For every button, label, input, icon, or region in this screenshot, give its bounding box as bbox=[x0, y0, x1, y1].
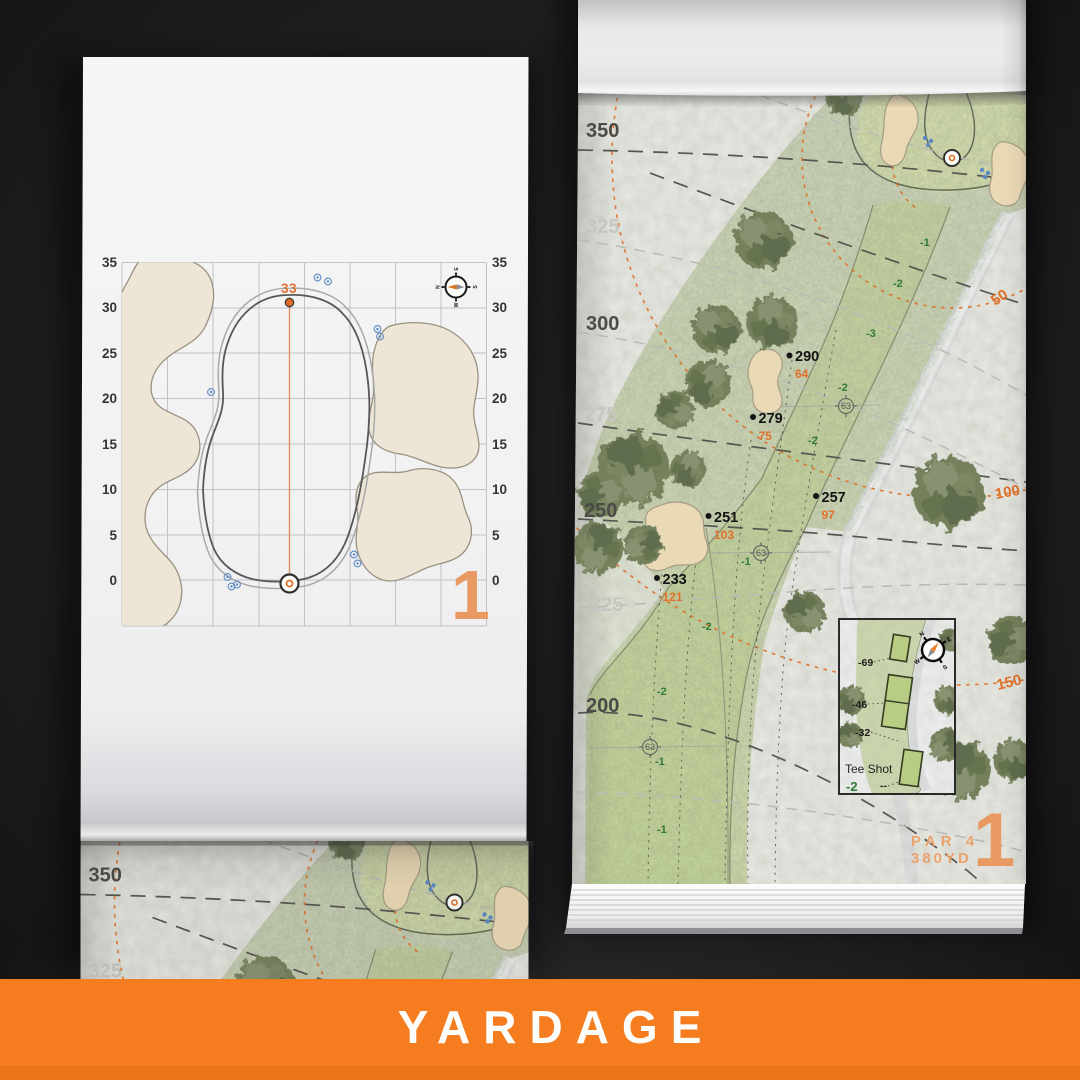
svg-text:290: 290 bbox=[795, 349, 819, 365]
svg-text:25: 25 bbox=[102, 346, 118, 361]
svg-text:W: W bbox=[454, 302, 460, 307]
svg-text:30: 30 bbox=[102, 300, 117, 315]
svg-text:-1: -1 bbox=[741, 556, 751, 568]
svg-text:20: 20 bbox=[102, 391, 117, 406]
svg-text:225: 225 bbox=[590, 594, 623, 616]
svg-text:-46: -46 bbox=[852, 699, 867, 711]
svg-text:350: 350 bbox=[586, 120, 619, 142]
svg-text:-2: -2 bbox=[702, 621, 712, 633]
svg-text:233: 233 bbox=[663, 572, 687, 588]
svg-text:-2: -2 bbox=[846, 779, 858, 794]
svg-text:Tee Shot: Tee Shot bbox=[845, 762, 893, 776]
svg-text:-2: -2 bbox=[808, 435, 818, 447]
svg-text:325: 325 bbox=[586, 216, 619, 238]
svg-text:-32: -32 bbox=[855, 727, 870, 739]
svg-text:251: 251 bbox=[714, 510, 738, 526]
svg-text:N: N bbox=[436, 285, 442, 289]
svg-text:103: 103 bbox=[714, 528, 734, 542]
svg-text:257: 257 bbox=[822, 490, 846, 506]
svg-text:20: 20 bbox=[492, 391, 507, 406]
svg-text:-69: -69 bbox=[858, 657, 873, 669]
svg-text:-2: -2 bbox=[838, 382, 848, 394]
svg-text:279: 279 bbox=[759, 411, 783, 427]
svg-text:63: 63 bbox=[756, 548, 766, 558]
svg-text:121: 121 bbox=[663, 590, 683, 604]
svg-text:380YD: 380YD bbox=[911, 850, 972, 867]
svg-text:35: 35 bbox=[492, 255, 508, 270]
svg-text:5: 5 bbox=[109, 528, 117, 543]
svg-text:250: 250 bbox=[584, 500, 617, 522]
svg-text:33: 33 bbox=[281, 281, 297, 296]
svg-text:75: 75 bbox=[759, 429, 773, 443]
svg-text:-1: -1 bbox=[920, 237, 930, 249]
svg-text:97: 97 bbox=[822, 508, 836, 522]
svg-text:-2: -2 bbox=[893, 278, 903, 290]
svg-text:10: 10 bbox=[102, 482, 117, 497]
svg-text:5: 5 bbox=[492, 528, 500, 543]
svg-text:-2: -2 bbox=[657, 686, 667, 698]
svg-text:63: 63 bbox=[645, 742, 655, 752]
svg-text:0: 0 bbox=[109, 573, 117, 588]
svg-text:25: 25 bbox=[492, 346, 508, 361]
svg-text:35: 35 bbox=[102, 255, 118, 270]
svg-text:200: 200 bbox=[586, 695, 619, 717]
svg-text:-3: -3 bbox=[866, 328, 876, 340]
svg-text:1: 1 bbox=[451, 556, 490, 634]
svg-text:275: 275 bbox=[584, 404, 617, 426]
svg-text:--: -- bbox=[880, 780, 887, 792]
svg-text:64: 64 bbox=[795, 367, 809, 381]
svg-text:0: 0 bbox=[492, 573, 500, 588]
svg-text:300: 300 bbox=[586, 313, 619, 335]
svg-text:PAR 4: PAR 4 bbox=[911, 833, 979, 850]
svg-text:-1: -1 bbox=[657, 824, 667, 836]
svg-text:63: 63 bbox=[841, 401, 851, 411]
svg-text:15: 15 bbox=[102, 437, 118, 452]
svg-text:YARDAGE: YARDAGE bbox=[398, 1001, 715, 1053]
svg-text:10: 10 bbox=[492, 482, 507, 497]
svg-text:15: 15 bbox=[492, 437, 508, 452]
svg-text:-1: -1 bbox=[655, 756, 665, 768]
svg-text:30: 30 bbox=[492, 300, 507, 315]
